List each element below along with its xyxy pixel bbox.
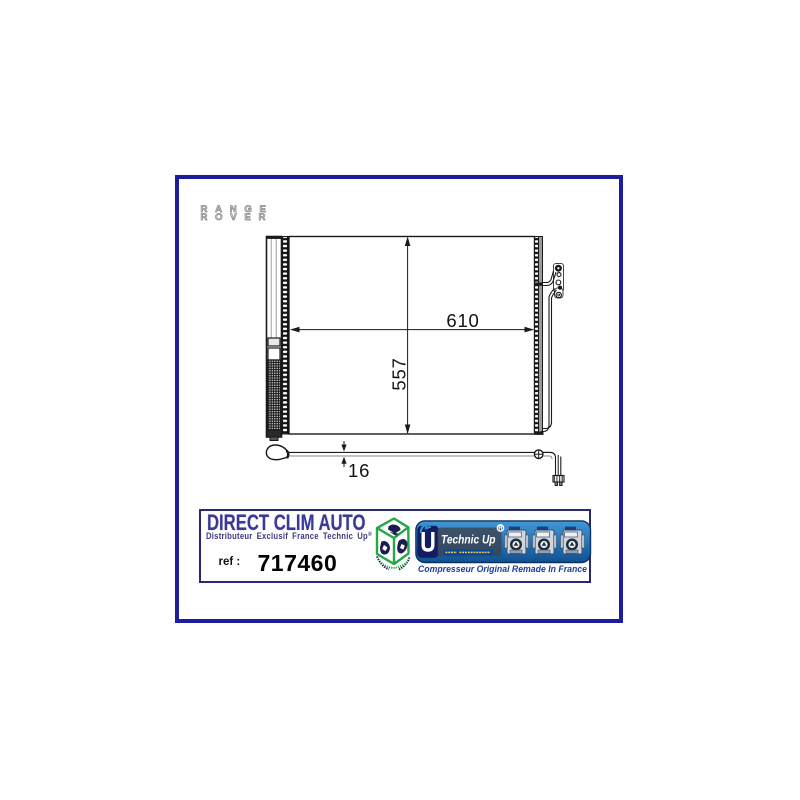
svg-text:R: R [498, 526, 503, 532]
svg-text:610: 610 [446, 310, 479, 331]
svg-text:16: 16 [348, 460, 370, 481]
svg-text:557: 557 [389, 357, 410, 390]
svg-text:Technic Up: Technic Up [441, 534, 496, 547]
